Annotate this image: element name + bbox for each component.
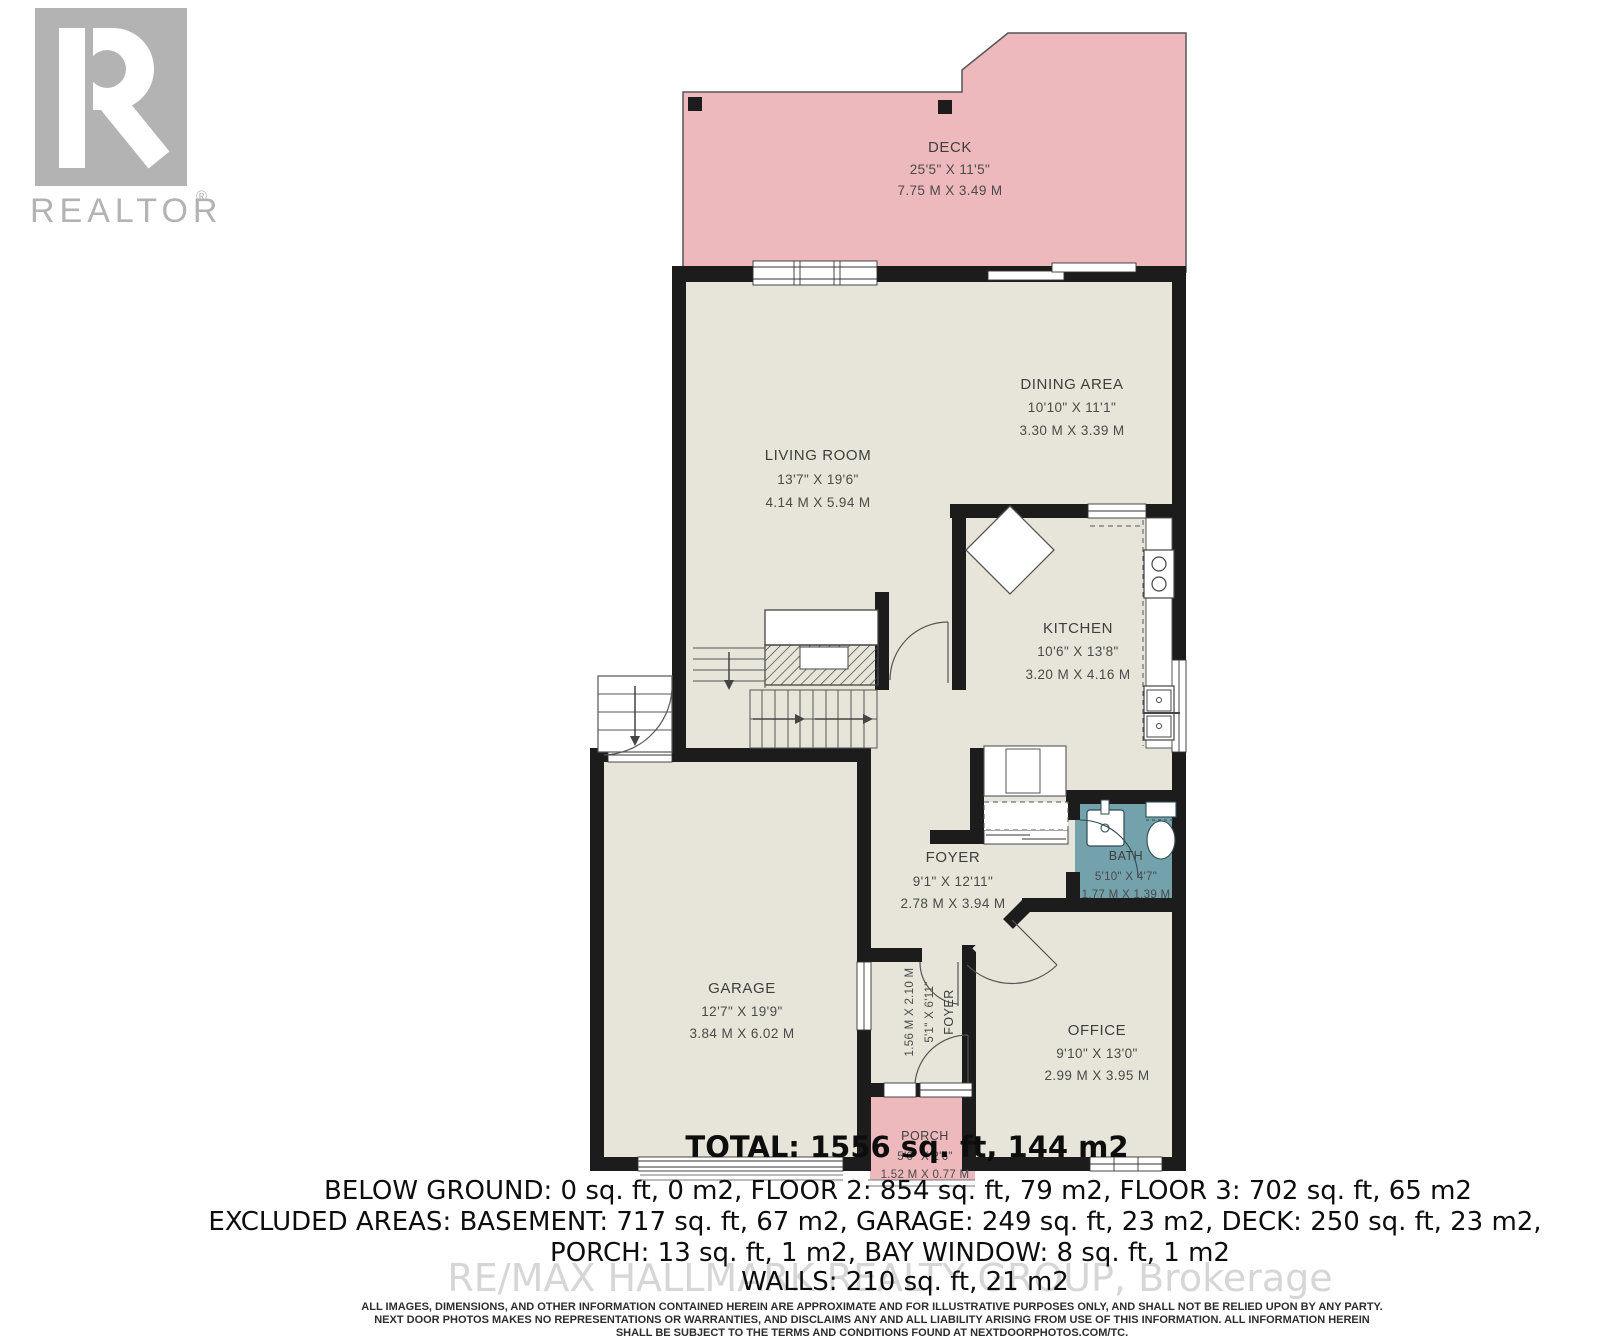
excluded-area-line: EXCLUDED AREAS: BASEMENT: 717 sq. ft, 67… — [208, 1207, 1541, 1237]
foyer-imperial: 9'1" X 12'11" — [913, 874, 994, 889]
living-room-imperial: 13'7" X 19'6" — [777, 472, 859, 487]
foyer2-metric: 1.56 M X 2.10 M — [904, 968, 916, 1057]
closet — [984, 802, 1068, 830]
foyer-metric: 2.78 M X 3.94 M — [900, 896, 1005, 911]
garage-label: GARAGE — [708, 980, 776, 997]
kitchen-appliance — [984, 746, 1066, 796]
living-room-label: LIVING ROOM — [765, 447, 872, 464]
garage-imperial: 12'7" X 19'9" — [701, 1004, 783, 1019]
office-imperial: 9'10" X 13'0" — [1056, 1046, 1138, 1061]
bath-imperial: 5'10" X 4'7" — [1095, 871, 1157, 883]
disclaimer-line-1: ALL IMAGES, DIMENSIONS, AND OTHER INFORM… — [361, 1301, 1382, 1313]
closet-slider — [984, 830, 1068, 844]
toilet — [1146, 802, 1176, 859]
excluded-area-line2: PORCH: 13 sq. ft, 1 m2, BAY WINDOW: 8 sq… — [550, 1238, 1230, 1268]
foyer2-imperial: 5'1" X 6'11" — [924, 981, 936, 1042]
garage-metric: 3.84 M X 6.02 M — [689, 1026, 794, 1041]
floorplan-page: REALTOR ® — [0, 0, 1600, 1337]
office-metric: 2.99 M X 3.95 M — [1044, 1068, 1149, 1083]
walls-area-line: WALLS: 210 sq. ft, 21 m2 — [741, 1267, 1069, 1297]
dining-area-metric: 3.30 M X 3.39 M — [1019, 423, 1124, 438]
kitchen-imperial: 10'6" X 13'8" — [1037, 644, 1119, 659]
deck-post — [938, 100, 952, 114]
stove — [1144, 550, 1174, 598]
foyer2-label: FOYER — [942, 989, 956, 1035]
floors-area-line: BELOW GROUND: 0 sq. ft, 0 m2, FLOOR 2: 8… — [324, 1176, 1472, 1206]
kitchen-metric: 3.20 M X 4.16 M — [1025, 667, 1130, 682]
deck-imperial: 25'5" X 11'5" — [910, 162, 991, 177]
disclaimer-line-3: SHALL BE SUBJECT TO THE TERMS AND CONDIT… — [616, 1327, 1128, 1337]
kitchen-sink — [1144, 686, 1180, 740]
deck-post — [688, 97, 702, 111]
bath-label: BATH — [1109, 849, 1143, 863]
dining-area-label: DINING AREA — [1020, 376, 1123, 393]
foyer-label: FOYER — [926, 849, 981, 866]
total-area-line: TOTAL: 1556 sq. ft, 144 m2 — [685, 1130, 1128, 1164]
fireplace — [765, 610, 878, 685]
bay-window — [753, 261, 877, 285]
porch-door-opening — [884, 1083, 916, 1097]
bath-metric: 1.77 M X 1.39 M — [1082, 889, 1171, 901]
deck-label: DECK — [928, 139, 972, 156]
porch-window — [920, 1083, 972, 1097]
disclaimer-line-2: NEXT DOOR PHOTOS MAKES NO REPRESENTATION… — [374, 1314, 1370, 1326]
side-entry-steps — [598, 676, 672, 755]
living-room-metric: 4.14 M X 5.94 M — [765, 495, 870, 510]
deck-metric: 7.75 M X 3.49 M — [897, 183, 1002, 198]
office-label: OFFICE — [1068, 1022, 1127, 1039]
kitchen-label: KITCHEN — [1043, 620, 1113, 637]
dining-area-imperial: 10'10" X 11'1" — [1028, 400, 1116, 415]
